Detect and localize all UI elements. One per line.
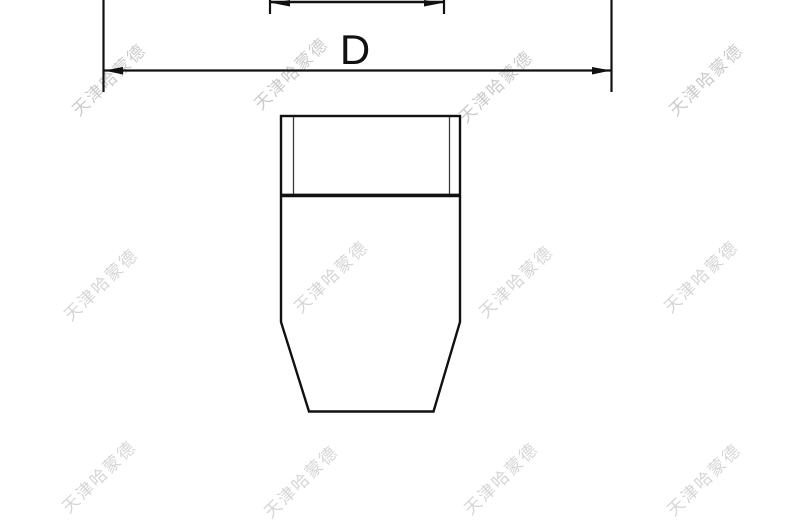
drawing-canvas: 天津哈蒙德 天津哈蒙德 天津哈蒙德 天津哈蒙德 天津哈蒙德 天津哈蒙德 天津哈蒙…	[0, 0, 790, 525]
inner-dimension	[270, 0, 444, 14]
outer-dimension: D	[104, 0, 612, 92]
body-outline	[281, 196, 460, 412]
dimension-label-d: D	[340, 26, 370, 73]
outer-arrow-right-icon	[592, 67, 611, 75]
part-outline	[280, 116, 461, 412]
part-drawing: D	[0, 0, 790, 525]
thread-section-outline	[281, 116, 460, 195]
outer-arrow-left-icon	[104, 67, 123, 75]
